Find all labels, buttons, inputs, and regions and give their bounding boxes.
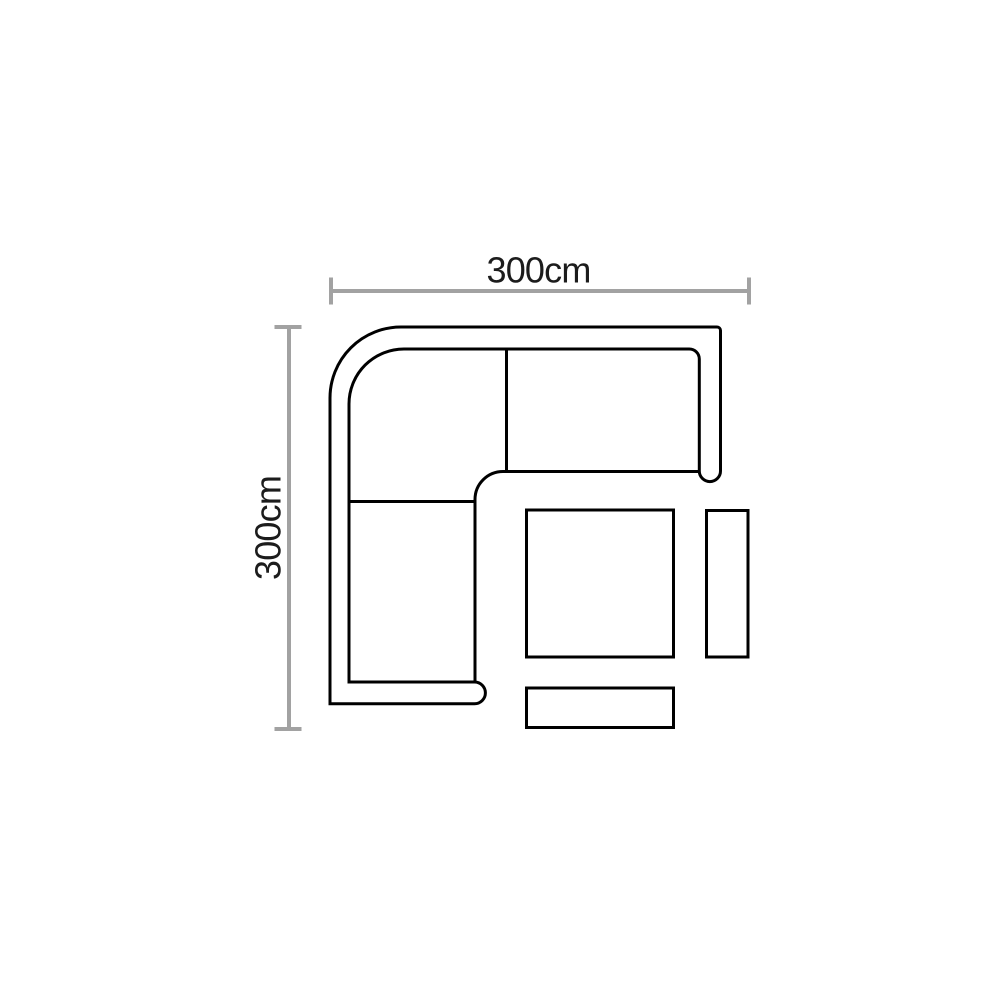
svg-text:300cm: 300cm (486, 250, 590, 291)
svg-text:300cm: 300cm (248, 476, 289, 580)
